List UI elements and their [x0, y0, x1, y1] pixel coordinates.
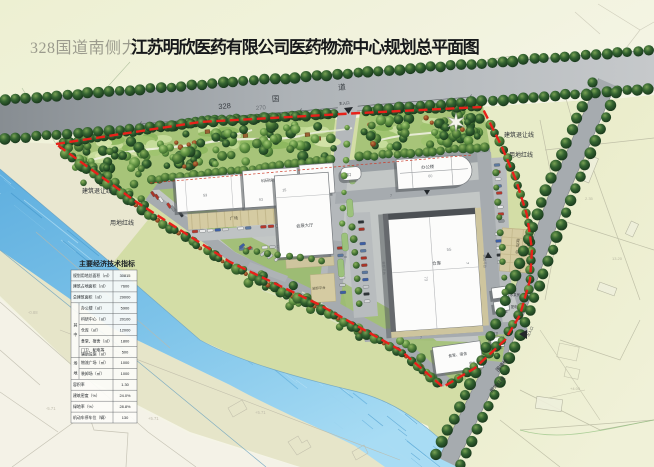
svg-text:20100: 20100 — [120, 317, 132, 322]
svg-text:用地红线: 用地红线 — [110, 219, 134, 227]
svg-text:7600: 7600 — [121, 284, 130, 289]
svg-text:53: 53 — [203, 193, 207, 197]
svg-text:装卸平台: 装卸平台 — [312, 285, 326, 291]
svg-text:食堂、宿舍（㎡）: 食堂、宿舍（㎡） — [81, 338, 112, 343]
svg-text:科研中心（㎡）: 科研中心（㎡） — [81, 317, 108, 322]
svg-text:2.35: 2.35 — [585, 196, 594, 201]
svg-text:-0.88: -0.88 — [28, 310, 38, 315]
svg-text:用地红线: 用地红线 — [509, 151, 533, 159]
svg-text:建筑退让线: 建筑退让线 — [82, 187, 112, 195]
svg-text:328: 328 — [218, 101, 231, 111]
svg-text:13.20: 13.20 — [612, 256, 623, 261]
svg-text:15: 15 — [282, 188, 286, 192]
svg-text:总建筑面积（㎡）: 总建筑面积（㎡） — [73, 295, 104, 300]
svg-text:国: 国 — [272, 94, 280, 104]
svg-text:+5.71: +5.71 — [255, 410, 266, 415]
svg-text:1000: 1000 — [121, 360, 130, 365]
svg-text:建筑退让线: 建筑退让线 — [504, 131, 534, 139]
svg-text:绿地率（%）: 绿地率（%） — [73, 404, 96, 409]
svg-text:规划用地总面积（㎡）: 规划用地总面积（㎡） — [73, 273, 112, 278]
svg-text:机动车停车位（辆）: 机动车停车位（辆） — [73, 415, 108, 420]
svg-text:1000: 1000 — [121, 371, 130, 376]
svg-text:24.0%: 24.0% — [119, 393, 131, 398]
svg-text:建筑占地面积（㎡）: 建筑占地面积（㎡） — [73, 284, 108, 289]
svg-text:28.8%: 28.8% — [119, 404, 131, 409]
svg-text:物流广场（㎡）: 物流广场（㎡） — [81, 360, 108, 365]
svg-text:建筑密度（%）: 建筑密度（%） — [73, 393, 100, 398]
svg-text:主入口: 主入口 — [339, 100, 351, 106]
svg-text:-5.71: -5.71 — [46, 406, 56, 411]
svg-text:93: 93 — [259, 198, 263, 202]
svg-text:328国道南侧力: 328国道南侧力 — [30, 39, 138, 57]
svg-text:5900: 5900 — [121, 306, 130, 311]
svg-text:办公楼（㎡）: 办公楼（㎡） — [81, 306, 104, 311]
svg-text:容积率: 容积率 — [73, 382, 85, 387]
svg-text:60: 60 — [428, 174, 432, 178]
svg-text:30815: 30815 — [120, 273, 131, 278]
svg-text:130: 130 — [122, 415, 129, 420]
svg-text:1800: 1800 — [121, 338, 130, 343]
svg-text:仓库（㎡）: 仓库（㎡） — [81, 327, 100, 332]
svg-text:其: 其 — [74, 322, 78, 327]
svg-text:地: 地 — [74, 370, 78, 375]
svg-text:场: 场 — [74, 361, 78, 366]
svg-text:270: 270 — [256, 105, 267, 112]
svg-text:辅助设施（㎡）: 辅助设施（㎡） — [81, 352, 108, 357]
svg-text:江苏明欣医药有限公司医药物流中心规划总平面图: 江苏明欣医药有限公司医药物流中心规划总平面图 — [131, 37, 479, 57]
svg-text:装卸场（㎡）: 装卸场（㎡） — [81, 371, 104, 376]
svg-text:12000: 12000 — [120, 327, 132, 332]
svg-text:道: 道 — [338, 82, 347, 93]
svg-text:+5.71: +5.71 — [148, 416, 159, 421]
svg-text:1.30: 1.30 — [121, 382, 129, 387]
svg-text:主要经济技术指标: 主要经济技术指标 — [79, 259, 135, 268]
svg-text:中: 中 — [74, 332, 78, 337]
svg-text:500: 500 — [122, 349, 129, 354]
svg-text:装卸平台: 装卸平台 — [381, 261, 387, 275]
svg-text:29000: 29000 — [120, 295, 132, 300]
